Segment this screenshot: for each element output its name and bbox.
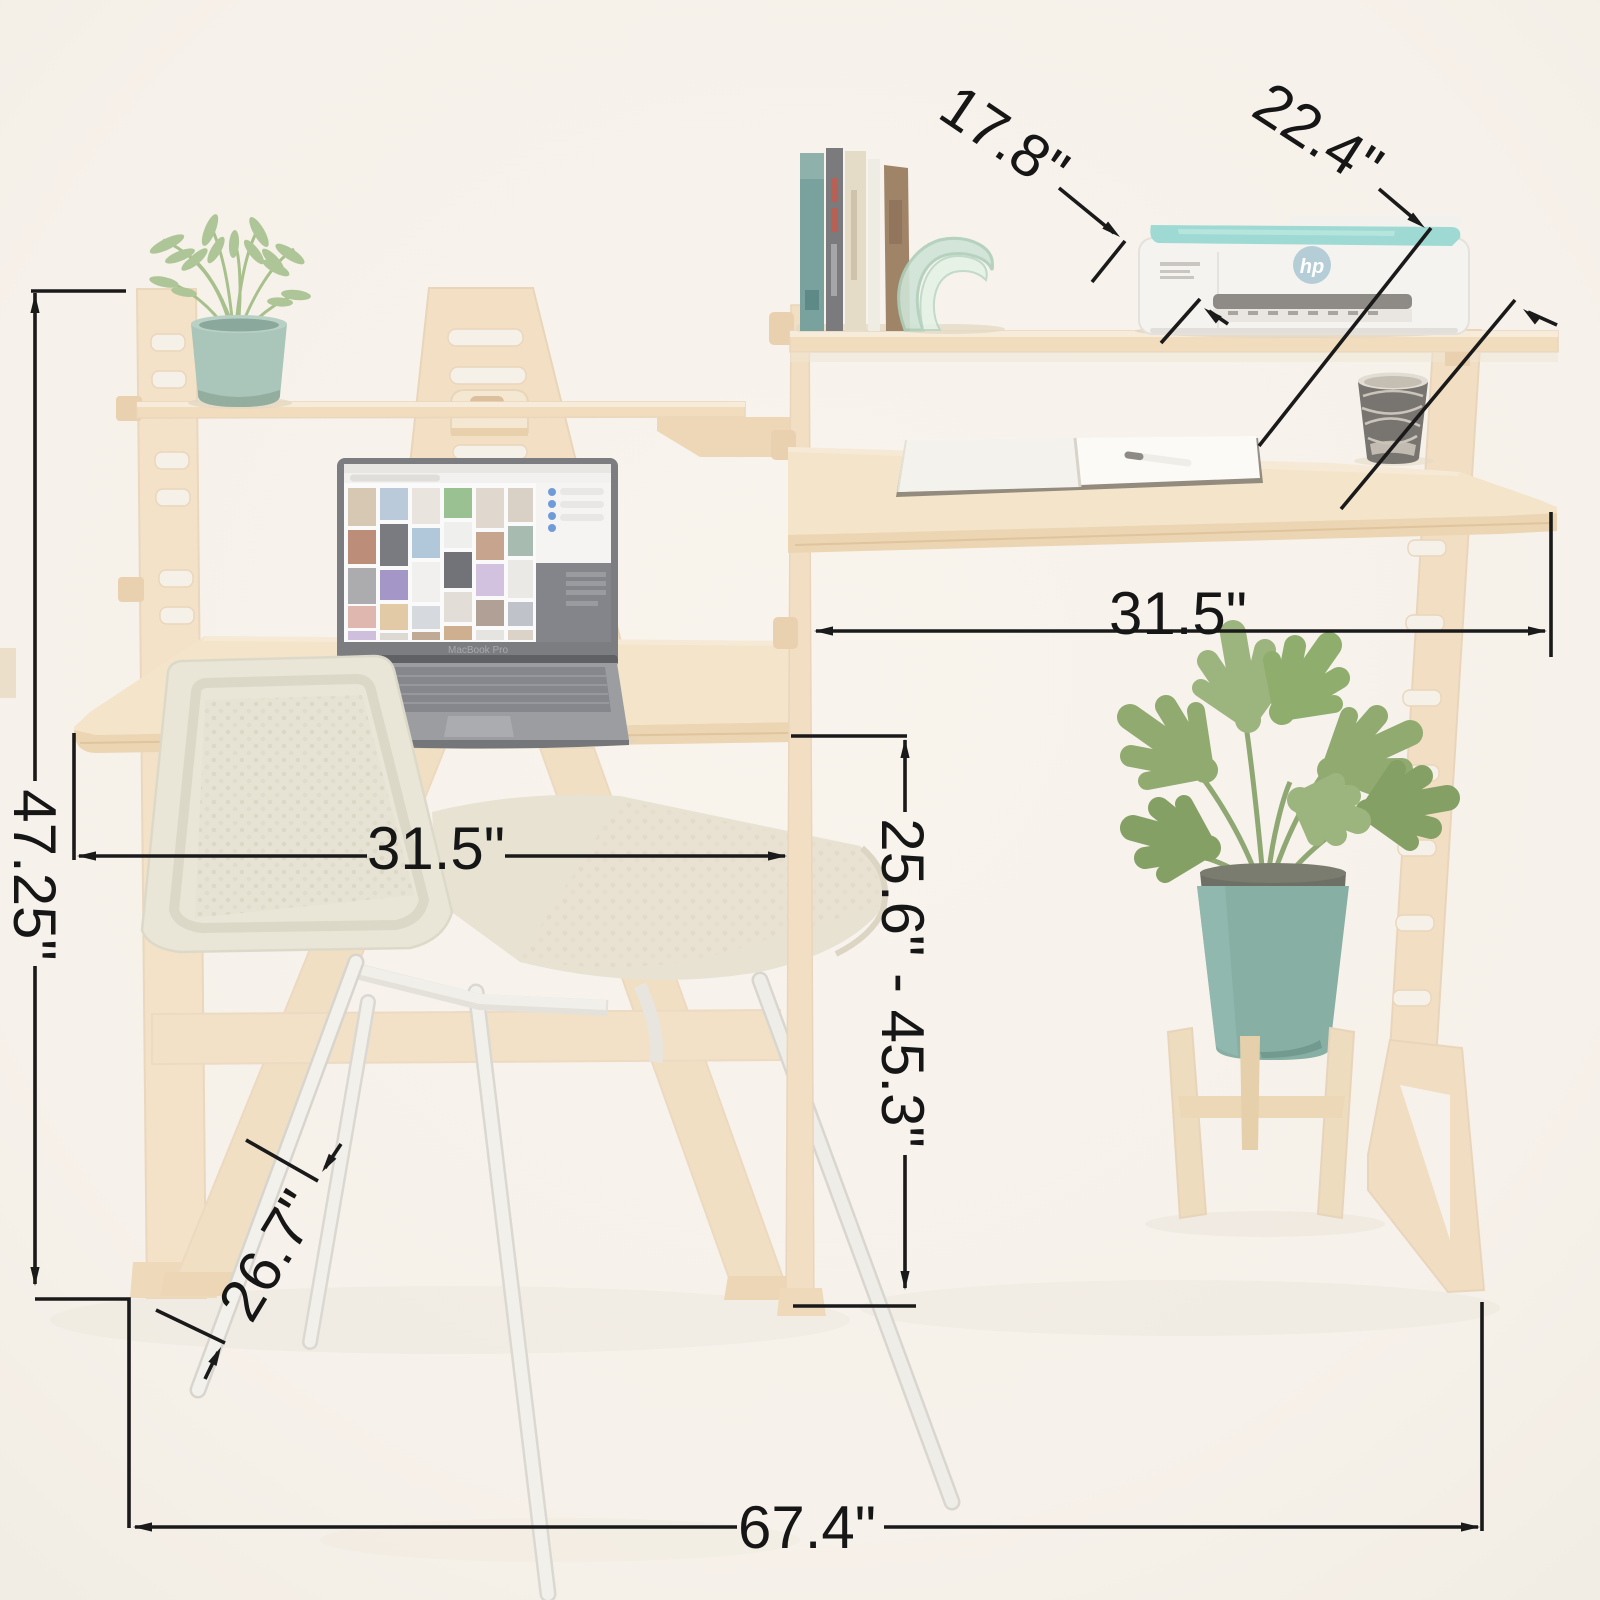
svg-text:25.6" - 45.3": 25.6" - 45.3" bbox=[869, 818, 936, 1147]
svg-text:31.5": 31.5" bbox=[367, 815, 505, 882]
svg-text:67.4": 67.4" bbox=[738, 1494, 876, 1561]
svg-text:hp: hp bbox=[1300, 256, 1324, 278]
svg-text:31.5": 31.5" bbox=[1109, 580, 1247, 647]
svg-text:47.25": 47.25" bbox=[1, 789, 68, 960]
svg-text:MacBook Pro: MacBook Pro bbox=[448, 645, 508, 656]
